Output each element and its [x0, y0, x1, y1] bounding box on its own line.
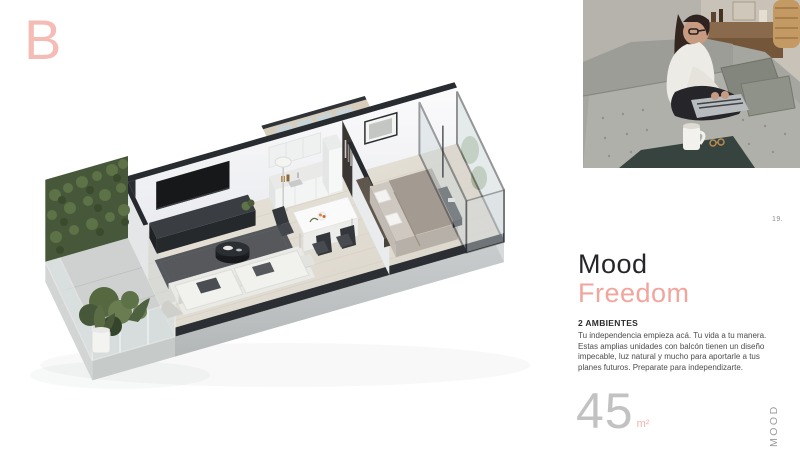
page-title: Mood — [578, 250, 690, 279]
unit-details: 2 AMBIENTES Tu independencia empieza acá… — [578, 318, 770, 373]
area-figure: 45 m² — [576, 386, 649, 436]
description-line: Estas amplias unidades con balcón tienen… — [578, 342, 770, 353]
vertical-brand-label: MOOD — [768, 377, 780, 447]
apartment-isometric-render — [0, 0, 560, 449]
description-line: planes futuros. Preparate para independi… — [578, 363, 770, 374]
title-block: Mood Freedom — [578, 250, 690, 308]
unit-type-label: 2 AMBIENTES — [578, 318, 770, 328]
coffee-table — [216, 242, 250, 264]
page-subtitle: Freedom — [578, 279, 690, 308]
area-unit: m² — [637, 418, 650, 430]
description-line: impecable, luz natural y mucho para apor… — [578, 352, 770, 363]
wicker-chair — [773, 0, 800, 48]
lifestyle-photo — [583, 0, 800, 168]
brochure-page: B — [0, 0, 800, 449]
area-value: 45 — [576, 386, 634, 436]
page-number: 19. — [772, 216, 783, 223]
description-line: Tu independencia empieza acá. Tu vida a … — [578, 331, 770, 342]
